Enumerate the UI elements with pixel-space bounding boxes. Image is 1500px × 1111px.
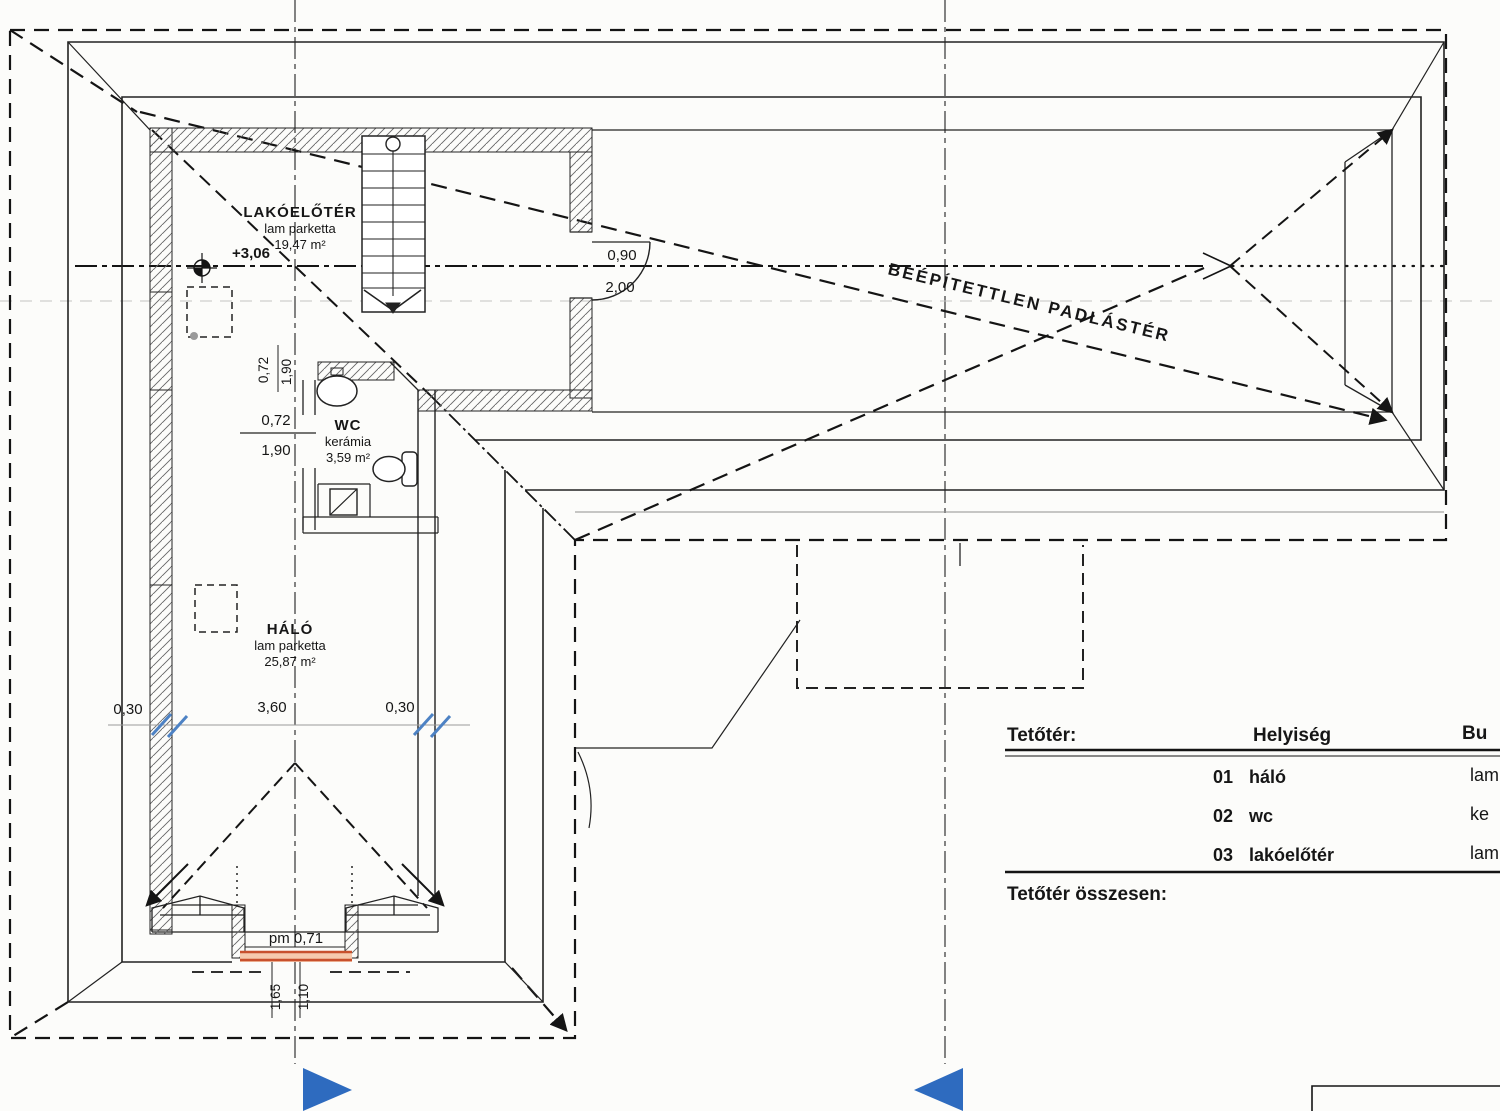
svg-text:1,90: 1,90 [279,359,294,385]
room-label-wc: WC kerámia 3,59 m² [325,417,372,465]
svg-text:1,90: 1,90 [261,442,290,459]
table-row: 01 háló lam [1213,765,1499,787]
table-row: 02 wc ke [1213,804,1489,826]
svg-text:ke: ke [1470,804,1489,824]
wc-dimensions: 0,72 1,90 0,72 1,90 [240,345,316,459]
floor-plan-drawing: +3,06 LAKÓELŐTÉR lam parketta 19,47 m² W… [0,0,1500,1111]
svg-text:1,10: 1,10 [296,984,311,1010]
parapet-label: pm 0,71 [269,930,323,947]
level-mark: +3,06 [187,245,270,283]
attic-label: BEÉPÍTETTLEN PADLÁSTÉR [886,260,1172,346]
svg-text:01: 01 [1213,767,1233,787]
eaves-dashed-boundary [10,30,1446,1038]
svg-text:lam parketta: lam parketta [254,638,326,653]
gable-window-sill-highlight [240,951,352,962]
svg-text:wc: wc [1248,806,1273,826]
table-row: 03 lakóelőtér lam [1213,843,1499,865]
section-arrow-right [914,1068,963,1111]
toilet-icon [373,452,417,486]
svg-text:0,90: 0,90 [607,247,636,264]
svg-text:lam parketta: lam parketta [264,221,336,236]
level-value: +3,06 [232,245,270,262]
room-label-halo: HÁLÓ lam parketta 25,87 m² [254,620,326,669]
roof-hip-lines [140,112,1392,566]
svg-text:3,59 m²: 3,59 m² [326,450,371,465]
svg-text:2,00: 2,00 [605,279,634,296]
svg-text:0,30: 0,30 [385,699,414,716]
svg-text:WC: WC [335,417,362,434]
svg-text:1,65: 1,65 [268,984,283,1010]
svg-text:02: 02 [1213,806,1233,826]
table-col-room: Helyiség [1253,725,1331,746]
svg-text:0,72: 0,72 [261,412,290,429]
svg-text:háló: háló [1249,767,1286,787]
table-total-label: Tetőtér összesen: [1007,884,1167,905]
title-block-corner [1312,1086,1500,1111]
roof-window-dot [190,332,198,340]
svg-text:0,72: 0,72 [256,357,271,383]
svg-text:03: 03 [1213,845,1233,865]
washing-machine-icon [330,489,357,515]
table-col-finish: Bu [1462,723,1487,744]
svg-text:lakóelőtér: lakóelőtér [1249,845,1334,865]
svg-text:3,60: 3,60 [257,699,286,716]
svg-text:HÁLÓ: HÁLÓ [267,620,314,638]
room-schedule-table: Tetőtér: Helyiség Bu 01 háló lam 02 wc k… [1005,723,1500,905]
svg-text:LAKÓELŐTÉR: LAKÓELŐTÉR [243,203,356,221]
roof-outlines [68,42,1444,1002]
table-title: Tetőtér: [1007,725,1076,746]
svg-text:lam: lam [1470,843,1499,863]
svg-text:19,47 m²: 19,47 m² [274,237,326,252]
terrace-outline [576,545,1083,828]
svg-text:kerámia: kerámia [325,434,372,449]
svg-text:lam: lam [1470,765,1499,785]
section-arrow-left [303,1068,352,1111]
svg-text:0,30: 0,30 [113,701,142,718]
door-dimension: 0,90 2,00 [605,247,636,296]
svg-text:25,87 m²: 25,87 m² [264,654,316,669]
staircase [362,136,425,313]
floor-plan-page: +3,06 LAKÓELŐTÉR lam parketta 19,47 m² W… [0,0,1500,1111]
